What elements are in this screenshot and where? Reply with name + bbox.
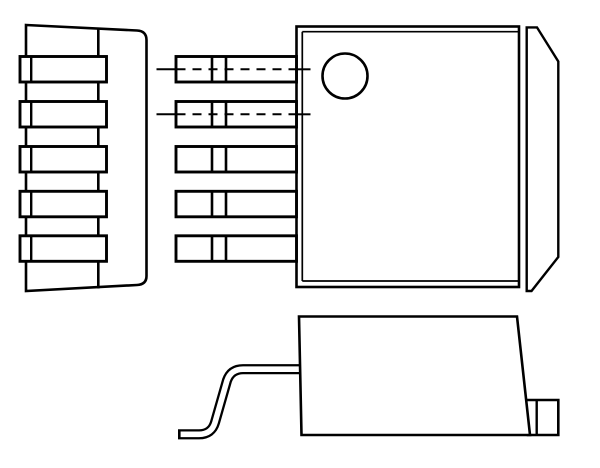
- gullwing-lead-outline: [178, 369, 300, 434]
- front-view: [20, 25, 147, 291]
- mounting-tab-outline: [527, 400, 559, 435]
- lead-5-outline: [176, 236, 297, 261]
- gullwing-lead-core: [181, 369, 304, 434]
- pin-2-outline: [20, 102, 107, 128]
- pin-3-outline: [20, 147, 107, 173]
- package-body-outline: [299, 317, 530, 436]
- package-body-outline: [297, 27, 520, 288]
- package-outline-drawing: [0, 0, 600, 468]
- lead-detail-view: [157, 57, 311, 262]
- package-drawing-svg: [0, 0, 600, 468]
- pin-5-outline: [20, 236, 107, 261]
- lead-3-outline: [176, 147, 297, 173]
- pin-4-outline: [20, 191, 107, 217]
- side-view: [178, 317, 558, 436]
- mounting-tab-outline: [527, 27, 559, 291]
- lead-4-outline: [176, 191, 297, 217]
- pin-1-outline: [20, 57, 107, 83]
- top-view: [297, 27, 559, 292]
